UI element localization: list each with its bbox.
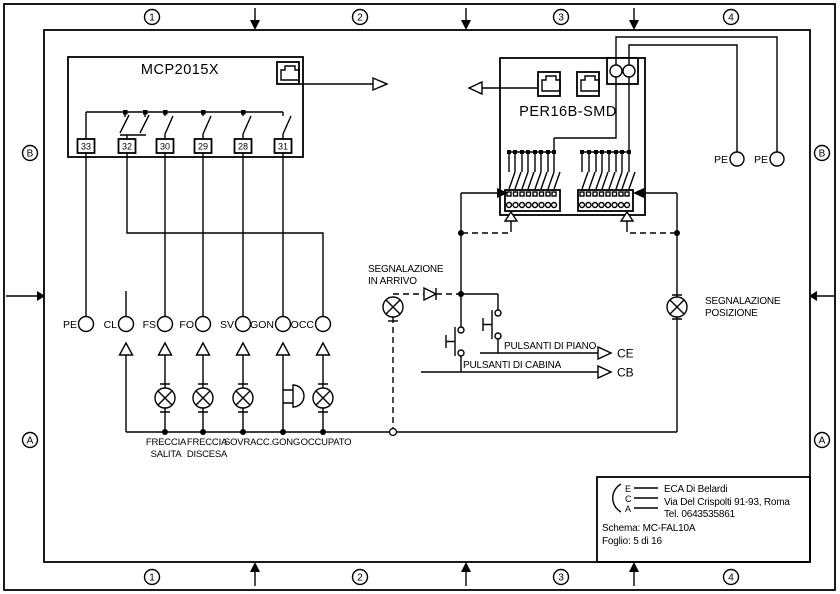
company-phone: Tel. 0643535861 <box>664 509 736 520</box>
posizione-circuit: SEGNALAZIONE POSIZIONE <box>633 188 781 432</box>
lamp-occupato-icon <box>313 388 333 408</box>
row-marker-a: A <box>27 436 34 447</box>
signal-label-fo: FO <box>179 319 194 331</box>
signal-label-sv: SV <box>220 319 234 331</box>
lamp-sovraccarico-icon <box>233 388 253 408</box>
mcp-terminals: 33 32 30 29 28 31 <box>78 139 292 153</box>
signal-label-occ: OCC <box>291 319 315 331</box>
pe-terminals: PE PE <box>616 37 784 166</box>
eca-logo: E C A <box>613 484 658 514</box>
logo-letter: C <box>625 494 632 504</box>
frame-tick-up-icon <box>461 562 471 572</box>
sheet-number: Foglio: 5 di 16 <box>602 536 662 547</box>
in-arrivo-label: SEGNALAZIONE <box>368 264 444 275</box>
pulsanti-piano-label: PULSANTI DI PIANO <box>504 341 597 352</box>
signal-label-pe: PE <box>63 319 77 331</box>
frame-tick-up-icon <box>629 562 639 572</box>
pe-label: PE <box>754 154 768 166</box>
bus-arrow-right-icon <box>598 347 611 359</box>
mcp-title: MCP2015X <box>141 62 219 78</box>
lamp-label: DISCESA <box>187 449 228 460</box>
schematic-drawing: 1 2 3 4 1 2 3 4 <box>0 0 840 594</box>
frame-tick-down-icon <box>461 20 471 30</box>
in-arrivo-label: IN ARRIVO <box>368 276 417 287</box>
bus-arrow-right-icon <box>598 366 611 378</box>
cb-label: CB <box>617 366 634 380</box>
lamp-label: FRECCIA <box>146 437 187 448</box>
frame-top-markers: 1 2 3 4 <box>145 8 739 30</box>
mcp-output-wires <box>86 153 323 317</box>
gong-buzzer-icon <box>283 385 304 407</box>
frame-tick-up-icon <box>250 562 260 572</box>
schema-code: Schema: MC-FAL10A <box>602 523 696 534</box>
lamp-label: OCCUPATO <box>301 437 352 448</box>
terminal-number: 32 <box>122 142 132 152</box>
rj45-icon <box>538 72 560 96</box>
company-name: ECA Di Belardi <box>664 484 727 495</box>
up-arrow-icon <box>237 343 250 355</box>
frame-bottom-markers: 1 2 3 4 <box>145 562 739 586</box>
pushbutton-cabina-icon <box>446 327 464 356</box>
lamp-in-arrivo-icon <box>383 297 403 317</box>
up-arrow-icon <box>317 343 330 355</box>
up-arrow-icon <box>277 343 290 355</box>
posizione-label: SEGNALAZIONE <box>705 296 781 307</box>
pushbutton-piano-icon <box>483 310 501 339</box>
power-terminal-icon <box>607 58 638 84</box>
title-block: E C A ECA Di Belardi Via Del Crispolti 9… <box>597 477 810 562</box>
terminal-number: 33 <box>81 142 91 152</box>
col-marker-4: 4 <box>728 13 734 24</box>
up-arrow-icon <box>120 343 133 355</box>
per-title: PER16B-SMD <box>519 104 617 120</box>
lamp-freccia-salita-icon <box>155 388 175 408</box>
rj45-icon <box>277 62 299 84</box>
lamp-label: SOVRACC. <box>224 437 272 448</box>
lamp-label: GONG <box>272 437 300 448</box>
per16b-unit: PER16B-SMD <box>469 58 645 226</box>
signal-label-fs: FS <box>143 319 156 331</box>
up-arrow-icon <box>197 343 210 355</box>
mcp-internal-wiring <box>86 112 291 139</box>
logo-letter: E <box>625 484 631 494</box>
col-marker-3: 3 <box>558 13 564 24</box>
up-arrow-icon <box>505 212 517 221</box>
up-arrow-icon <box>159 343 172 355</box>
col-marker-2: 2 <box>357 13 363 24</box>
row-marker-b: B <box>819 149 826 160</box>
terminal-number: 30 <box>160 142 170 152</box>
row-marker-b: B <box>27 149 34 160</box>
schematic-sheet: 1 2 3 4 1 2 3 4 <box>0 0 840 594</box>
signal-label-cl: CL <box>104 319 118 331</box>
posizione-label: POSIZIONE <box>705 308 758 319</box>
col-marker-1: 1 <box>149 13 155 24</box>
row-marker-a: A <box>819 436 826 447</box>
pe-label: PE <box>714 154 728 166</box>
up-arrow-icon <box>621 212 633 221</box>
bank-pins <box>507 192 557 208</box>
lamp-row: FRECCIA SALITA FRECCIA DISCESA SOVRACC. … <box>120 343 678 460</box>
terminal-number: 29 <box>198 142 208 152</box>
col-marker-3: 3 <box>558 573 564 584</box>
rj45-icon <box>577 72 599 96</box>
bank-arrow-left-icon <box>633 188 644 198</box>
col-marker-2: 2 <box>357 573 363 584</box>
bank-pins <box>580 192 630 208</box>
pushbutton-circuit: PULSANTI DI PIANO CE PULSANTI DI CABINA … <box>421 188 674 380</box>
ce-label: CE <box>617 347 634 361</box>
pulsanti-cabina-label: PULSANTI DI CABINA <box>463 360 562 371</box>
lamp-freccia-discesa-icon <box>193 388 213 408</box>
terminal-number: 28 <box>238 142 248 152</box>
signal-terminal-row: PE CL FS FO SV GON OCC <box>63 317 331 332</box>
lamp-label: SALITA <box>151 449 183 460</box>
lamp-label: FRECCIA <box>187 437 228 448</box>
lamp-posizione-icon <box>667 297 687 317</box>
frame-tick-down-icon <box>629 20 639 30</box>
company-address: Via Del Crispolti 91-93, Roma <box>664 497 790 508</box>
bus-arrow-left-icon <box>469 82 482 94</box>
mcp2015x-unit: MCP2015X 33 32 30 29 28 <box>68 57 387 157</box>
logo-letter: A <box>625 504 631 514</box>
col-marker-4: 4 <box>728 573 734 584</box>
col-marker-1: 1 <box>149 573 155 584</box>
open-junction <box>390 429 397 436</box>
signal-label-gon: GON <box>250 319 274 331</box>
terminal-number: 31 <box>278 142 288 152</box>
bus-arrow-right-icon <box>373 78 387 90</box>
frame-tick-down-icon <box>250 20 260 30</box>
arrivo-circuit: SEGNALAZIONE IN ARRIVO <box>368 264 458 428</box>
diode-icon <box>424 288 436 300</box>
